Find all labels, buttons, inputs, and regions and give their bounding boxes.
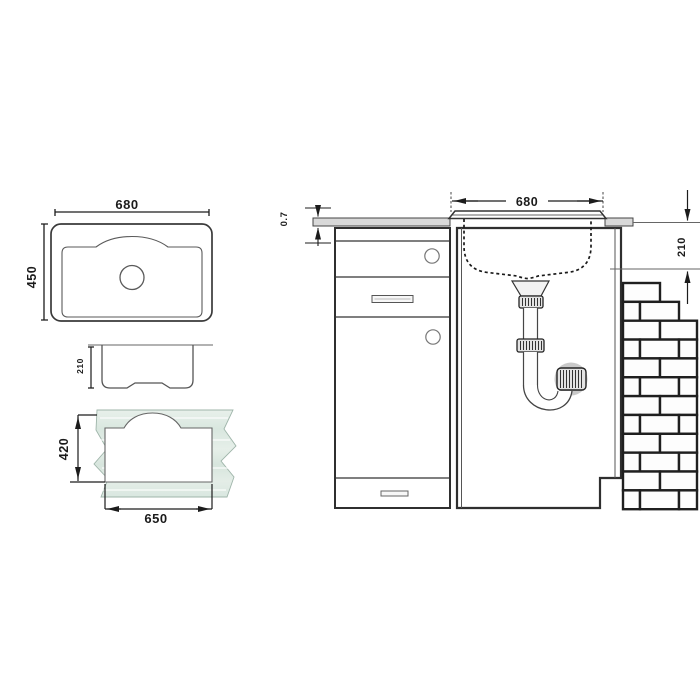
brick xyxy=(623,396,660,415)
brick xyxy=(660,358,697,377)
dimension-label-worktop-thickness: 0.7 xyxy=(279,212,290,227)
brick xyxy=(640,453,679,472)
trap-outlet-nut xyxy=(557,368,586,390)
brick xyxy=(640,340,679,359)
brick xyxy=(623,283,660,302)
worktop-cutout-template: 420 650 xyxy=(57,410,236,526)
brick xyxy=(660,396,697,415)
brick xyxy=(623,321,660,340)
brick xyxy=(623,453,640,472)
dimension-label-cutout-depth: 420 xyxy=(57,438,71,460)
sink-dimension-diagram: 680 450 210 420 650 xyxy=(0,0,700,700)
sink-side-profile: 210 xyxy=(75,345,213,388)
door-knob-upper xyxy=(425,249,439,263)
drawer-handle xyxy=(372,296,413,303)
top-view-width-dimension: 680 xyxy=(55,197,209,216)
worktop-slab-left xyxy=(313,218,450,226)
trap-nut-middle xyxy=(517,339,544,352)
brick xyxy=(623,415,640,434)
brick xyxy=(640,377,679,396)
brick xyxy=(640,415,679,434)
brick xyxy=(623,490,640,509)
brick-wall xyxy=(623,283,697,509)
sink-rim xyxy=(449,211,606,219)
dimension-label-cutout-width: 650 xyxy=(144,511,167,526)
cabinet-drawer-unit xyxy=(335,228,450,508)
brick xyxy=(623,358,660,377)
brick xyxy=(640,490,679,509)
bowl-cross-section xyxy=(102,345,193,388)
sink-top-view: 680 450 xyxy=(25,197,212,321)
brick xyxy=(679,377,697,396)
sink-outer-outline xyxy=(51,224,212,321)
trap-tailpipe xyxy=(524,308,538,340)
brick xyxy=(679,415,697,434)
plinth-drawer-handle xyxy=(381,491,408,496)
dimension-label-side-height: 210 xyxy=(75,358,85,374)
brick xyxy=(660,434,697,453)
worktop-slab-right xyxy=(605,218,633,226)
brick xyxy=(623,302,640,321)
brick xyxy=(623,340,640,359)
elevation-width-dimension: 680 xyxy=(451,192,603,212)
dimension-label-top-width: 680 xyxy=(115,197,138,212)
dimension-label-bowl-depth: 210 xyxy=(676,237,688,257)
brick xyxy=(640,302,679,321)
brick xyxy=(623,377,640,396)
brick xyxy=(679,490,697,509)
door-knob-lower xyxy=(426,330,440,344)
dimension-label-top-depth: 450 xyxy=(25,266,39,288)
brick xyxy=(679,453,697,472)
trap-nut-upper xyxy=(519,296,543,308)
brick xyxy=(623,472,660,491)
brick xyxy=(660,321,697,340)
brick xyxy=(623,434,660,453)
brick xyxy=(660,472,697,491)
installation-elevation: 680 0.7 xyxy=(279,190,700,509)
side-profile-height-dimension: 210 xyxy=(75,347,94,388)
top-view-depth-dimension: 450 xyxy=(25,224,48,320)
technical-drawing-page: 680 450 210 420 650 xyxy=(0,0,700,700)
dimension-label-install-width: 680 xyxy=(516,195,538,209)
sink-base-unit xyxy=(457,228,621,508)
brick xyxy=(679,340,697,359)
